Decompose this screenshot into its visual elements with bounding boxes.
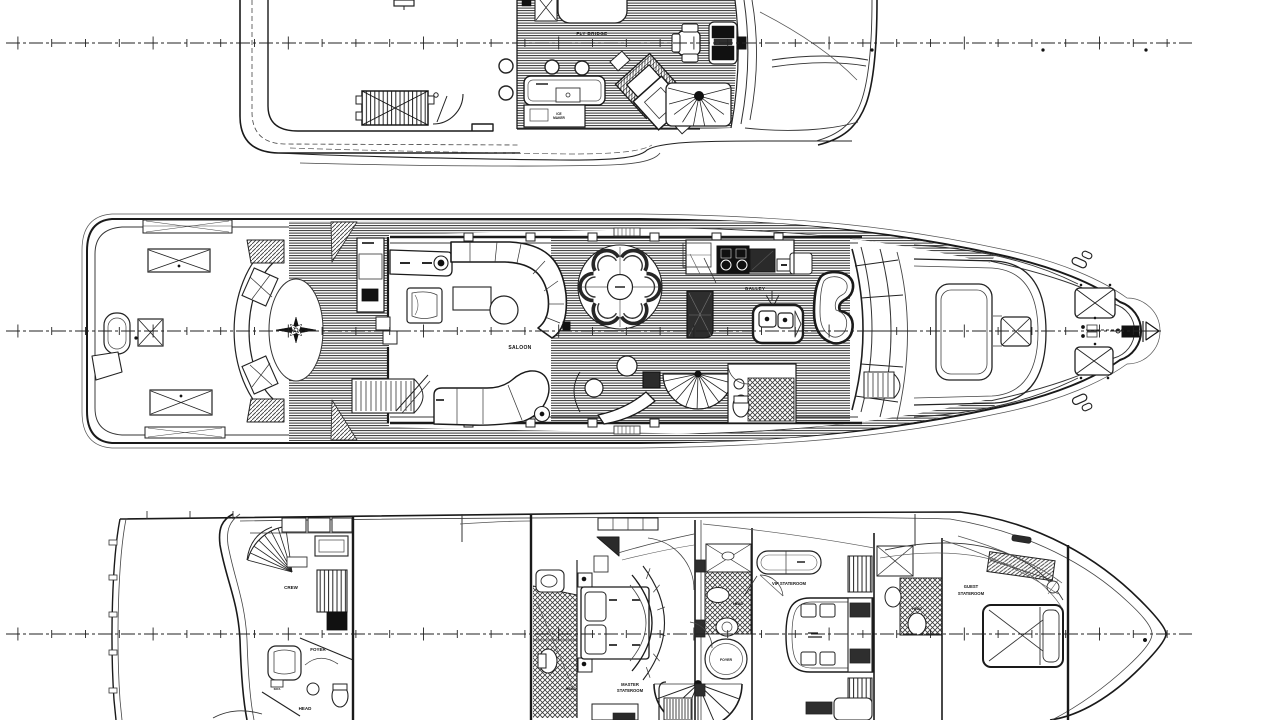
- svg-text:STATEROOM: STATEROOM: [617, 688, 644, 693]
- svg-text:HEAD: HEAD: [566, 687, 577, 691]
- svg-text:VIP STATEROOM: VIP STATEROOM: [772, 581, 806, 586]
- svg-text:HEAD: HEAD: [912, 607, 922, 611]
- svg-text:FLY BRIDGE: FLY BRIDGE: [576, 31, 607, 36]
- svg-text:SOFA: SOFA: [274, 688, 281, 691]
- svg-text:SALOON: SALOON: [508, 345, 531, 351]
- svg-text:MASTER: MASTER: [621, 682, 639, 687]
- svg-text:HEAD: HEAD: [733, 602, 743, 606]
- svg-text:FOYER: FOYER: [720, 658, 733, 662]
- svg-text:STATEROOM: STATEROOM: [958, 591, 985, 596]
- svg-text:CREW: CREW: [284, 585, 299, 590]
- svg-text:HEAD: HEAD: [299, 706, 313, 711]
- svg-text:MAKER: MAKER: [553, 116, 565, 120]
- svg-text:GUEST: GUEST: [964, 584, 979, 589]
- svg-text:GALLEY: GALLEY: [745, 286, 765, 291]
